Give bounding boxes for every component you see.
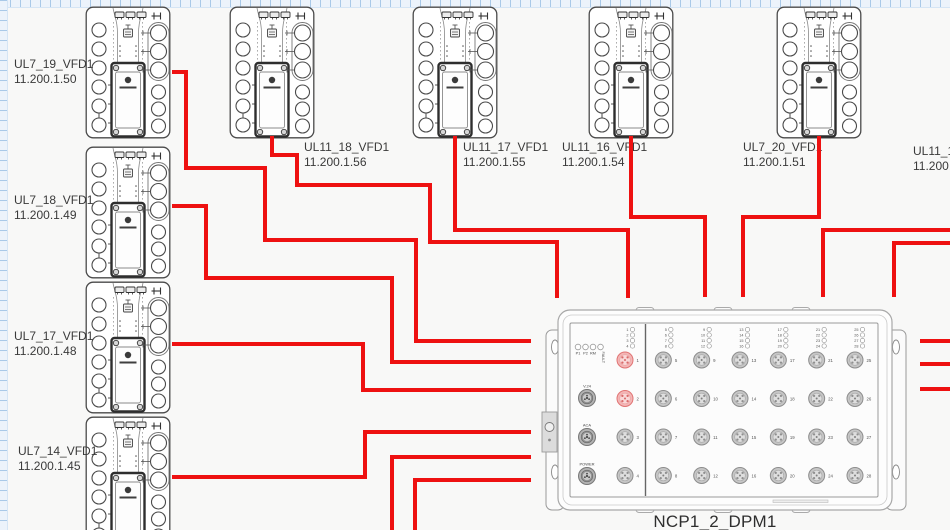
cable-ul7-20[interactable] [743,136,819,297]
cable-ul11-16[interactable] [631,136,705,297]
cable-ul7-17[interactable] [172,344,531,390]
cable-ul7-14[interactable] [172,432,531,477]
cable-right-in-upper[interactable] [823,230,950,297]
cable-layer [0,0,950,530]
switch-label: NCP1_2_DPM1 [500,512,930,530]
cable-ul7-19[interactable] [172,72,531,341]
cable-ul11-17[interactable] [455,136,628,298]
diagram-canvas: UL7_19_VFD111.200.1.50UL7_18_VFD111.200.… [0,0,950,530]
cable-right-in-lower[interactable] [894,243,950,297]
